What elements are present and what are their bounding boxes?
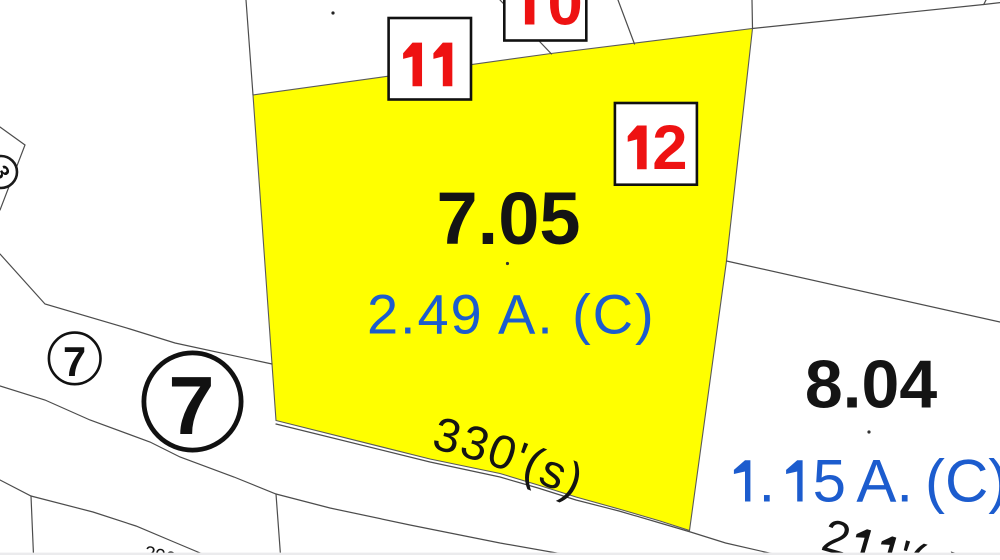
svg-text:2: 2 <box>652 113 687 183</box>
svg-text:2.49 A. (C): 2.49 A. (C) <box>367 283 656 346</box>
svg-text:7: 7 <box>63 338 86 385</box>
svg-text:8.04: 8.04 <box>805 347 938 423</box>
svg-text:7: 7 <box>168 359 214 452</box>
svg-text:0: 0 <box>548 0 583 39</box>
svg-text:7.05: 7.05 <box>436 177 580 260</box>
